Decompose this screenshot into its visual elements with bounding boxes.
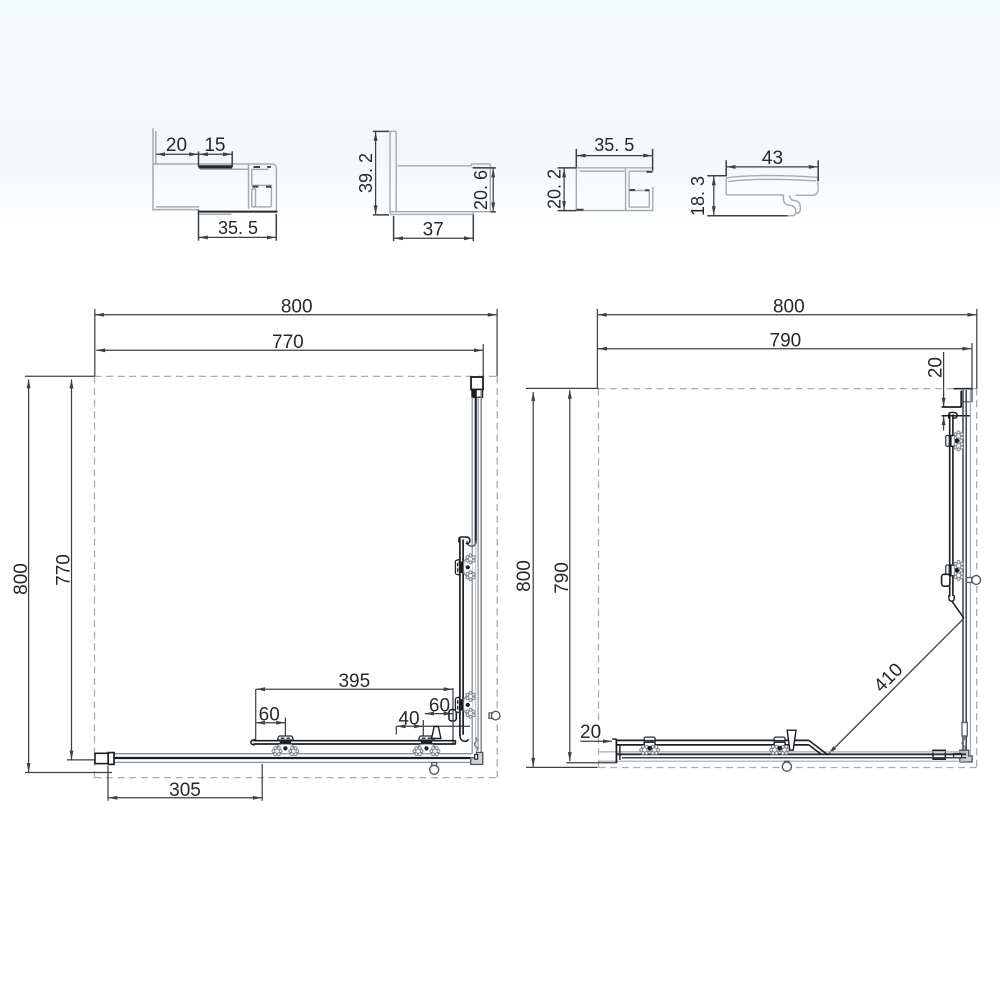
svg-text:60: 60 [259, 705, 280, 726]
svg-text:800: 800 [281, 297, 313, 318]
svg-text:395: 395 [338, 671, 370, 692]
svg-text:43: 43 [762, 148, 783, 169]
svg-text:35. 5: 35. 5 [594, 135, 634, 155]
svg-text:15: 15 [204, 135, 225, 156]
svg-text:35. 5: 35. 5 [218, 218, 258, 238]
svg-text:800: 800 [514, 560, 535, 592]
svg-text:790: 790 [552, 562, 573, 594]
svg-text:20. 6: 20. 6 [471, 170, 491, 210]
svg-text:305: 305 [169, 780, 201, 801]
svg-text:410: 410 [870, 659, 907, 696]
svg-text:770: 770 [272, 332, 304, 353]
svg-text:20. 2: 20. 2 [545, 169, 565, 209]
svg-text:60: 60 [429, 696, 450, 717]
svg-text:20: 20 [166, 135, 187, 156]
svg-text:800: 800 [773, 297, 805, 318]
svg-text:20: 20 [580, 722, 601, 743]
svg-text:790: 790 [770, 331, 802, 352]
svg-text:18. 3: 18. 3 [688, 176, 708, 216]
svg-text:800: 800 [11, 563, 32, 595]
svg-text:39. 2: 39. 2 [356, 153, 376, 193]
svg-text:37: 37 [423, 219, 444, 240]
svg-text:20: 20 [925, 357, 946, 378]
svg-text:40: 40 [398, 708, 419, 729]
svg-text:770: 770 [54, 554, 75, 586]
